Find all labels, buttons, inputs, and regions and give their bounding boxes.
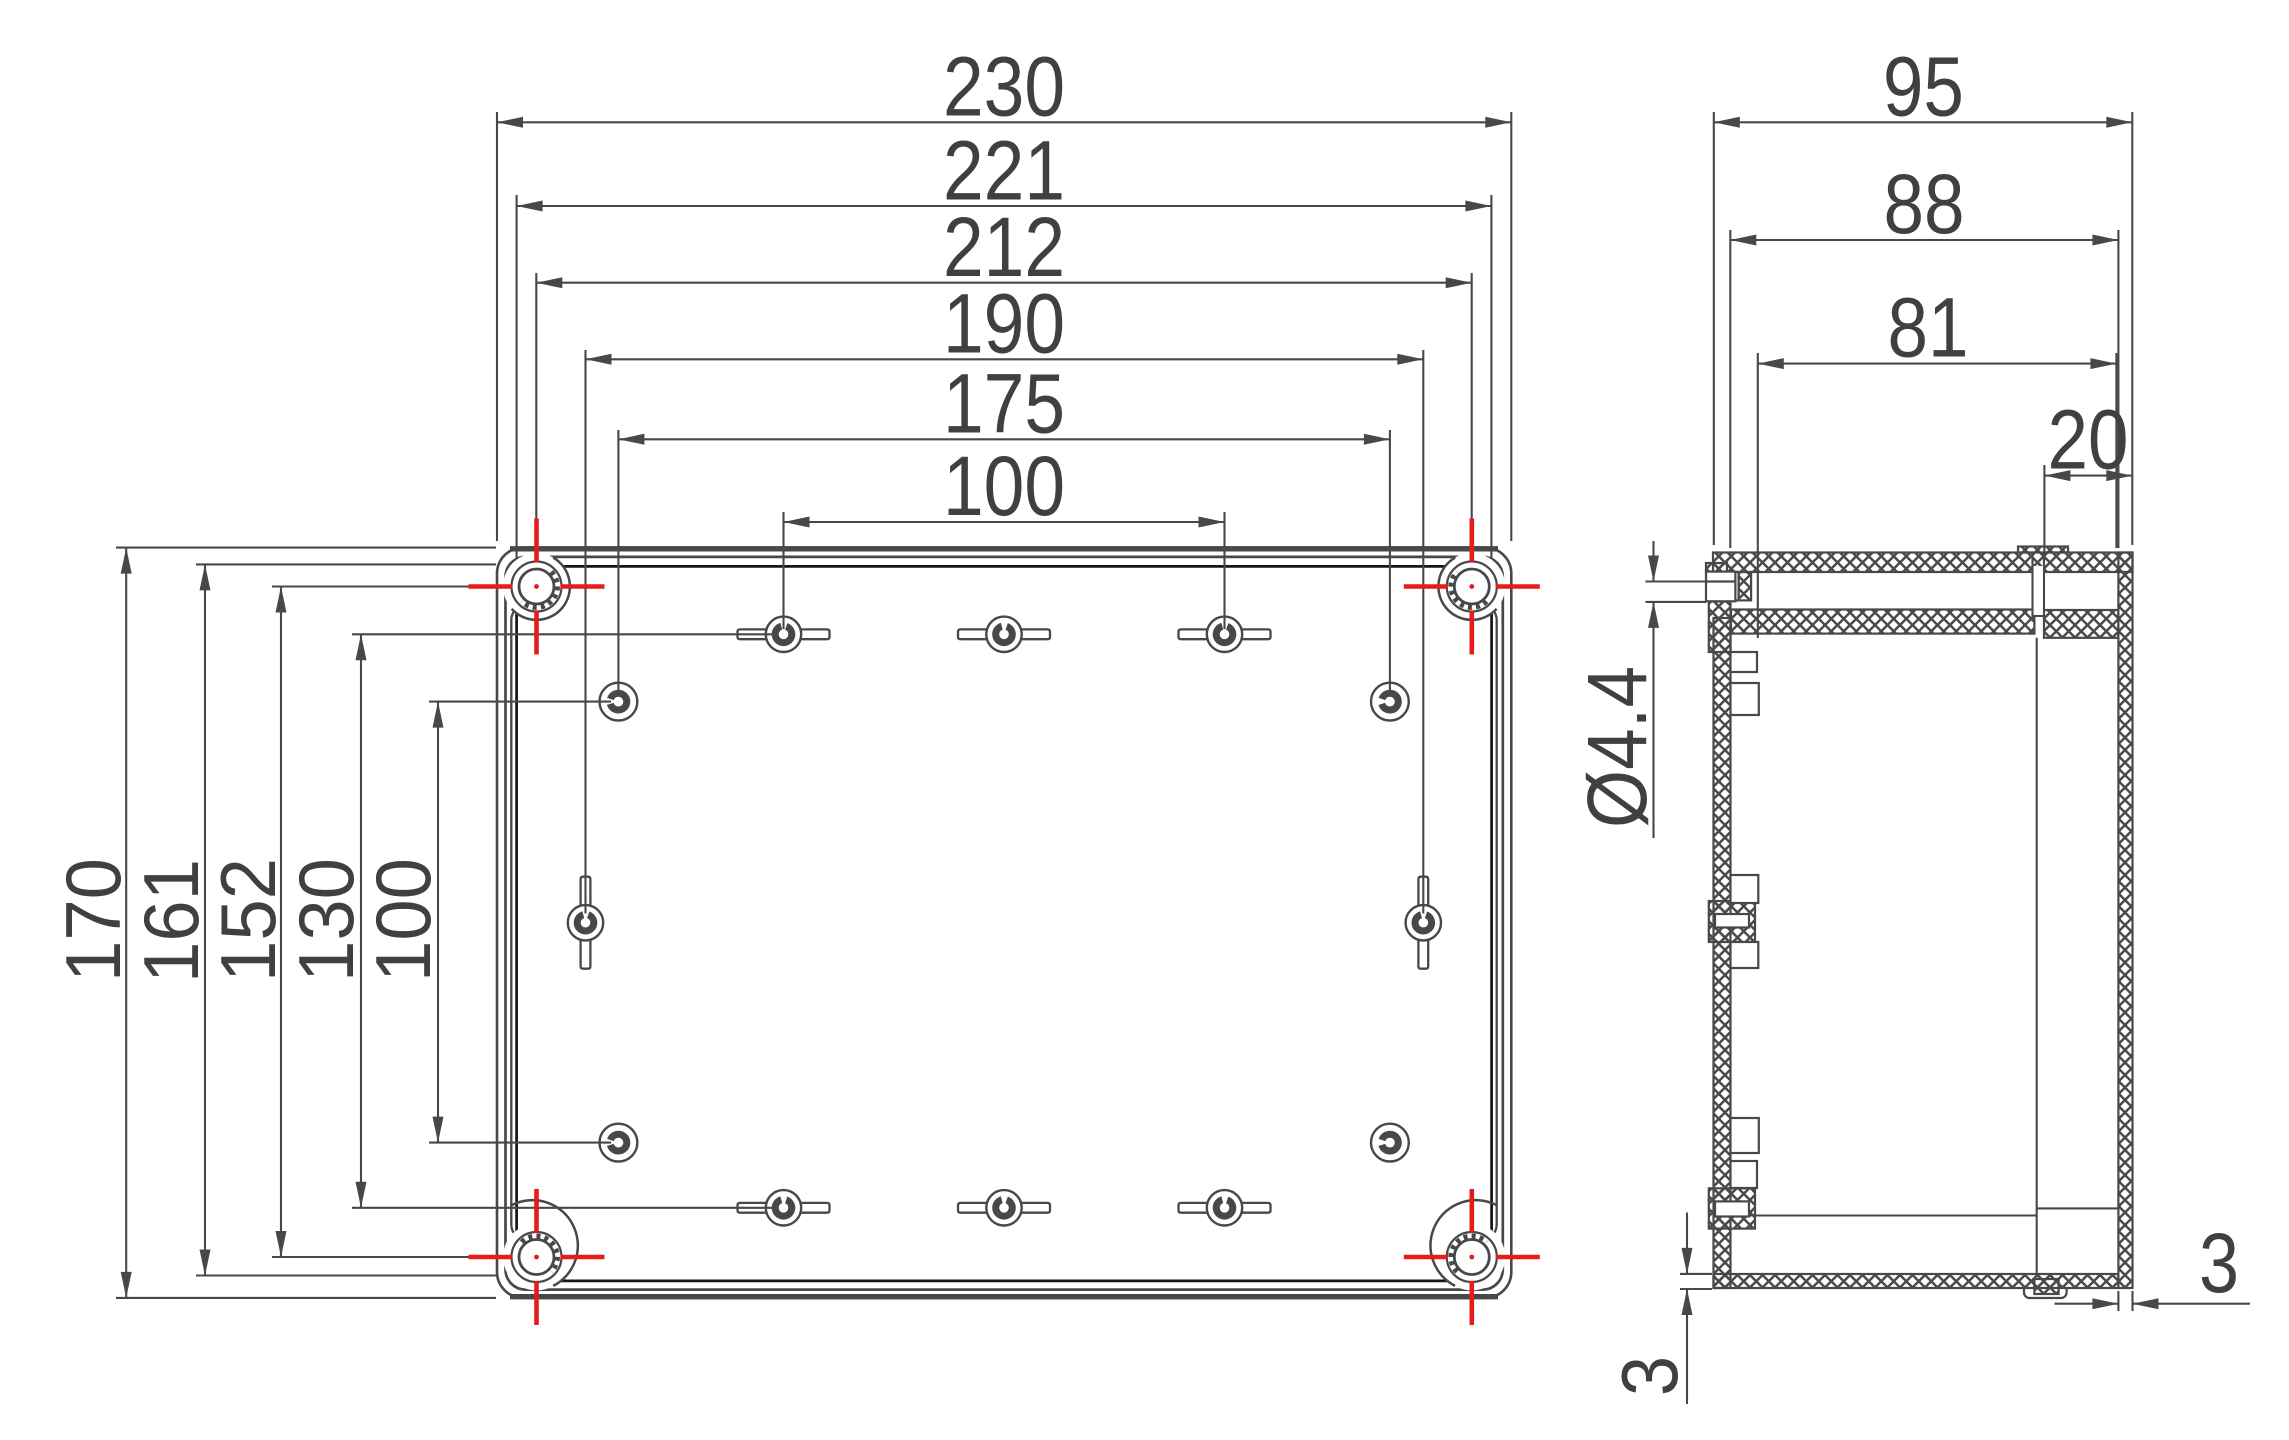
svg-text:175: 175	[943, 357, 1065, 451]
svg-text:170: 170	[49, 858, 137, 982]
svg-text:152: 152	[204, 858, 292, 982]
svg-text:161: 161	[127, 859, 215, 983]
svg-text:100: 100	[359, 858, 447, 982]
svg-text:88: 88	[1884, 157, 1965, 251]
svg-text:3: 3	[1605, 1356, 1694, 1396]
svg-text:3: 3	[2199, 1216, 2239, 1310]
svg-text:20: 20	[2048, 393, 2129, 487]
svg-text:81: 81	[1888, 281, 1969, 375]
svg-text:Ø4.4: Ø4.4	[1570, 666, 1664, 828]
svg-text:100: 100	[943, 439, 1065, 533]
svg-text:95: 95	[1883, 40, 1964, 134]
svg-text:130: 130	[282, 858, 370, 982]
svg-text:230: 230	[943, 40, 1065, 134]
